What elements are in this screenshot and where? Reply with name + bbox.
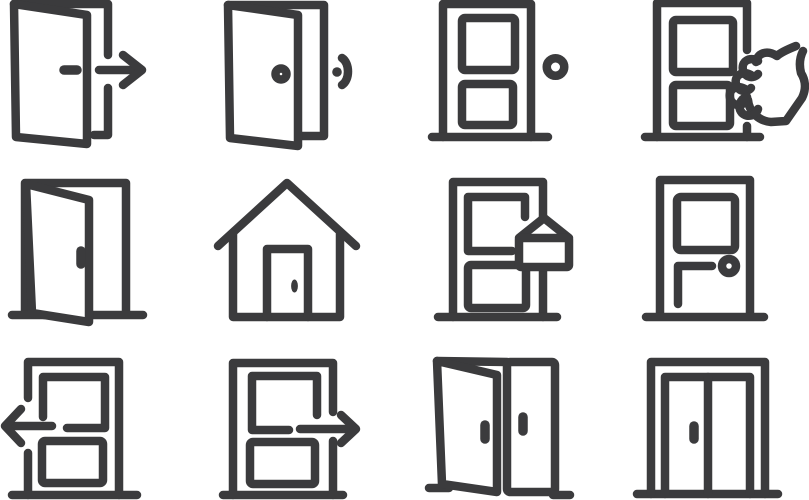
door-panel-bottom [462,84,513,125]
double-door-one-open-icon [400,340,600,500]
door-knob [291,280,298,293]
door-arrow-right-icon [200,340,400,500]
push-handle [678,266,712,304]
door-panel-bottom [673,85,730,126]
door-panel-bottom [250,442,315,484]
door-panel-bottom [468,265,526,308]
door-icon-set-sheet [0,0,809,500]
door-open-icon [0,170,200,340]
door-exit-arrow-right-icon [0,0,200,170]
door-panel-bottom [42,441,103,483]
icon-cell-7 [400,170,600,340]
door-closed-doorbell-icon [400,0,600,170]
door-leaf-right [507,362,555,492]
icon-cell-6 [200,170,400,340]
door-knocking-hand-icon [600,0,809,170]
icon-cell-1 [0,0,200,170]
knocking-hand [730,46,805,122]
door-window-handle-icon [600,170,809,340]
hanging-sign [519,218,569,268]
house-door [267,249,308,317]
door-panel-top [43,377,105,428]
house-roof [218,183,356,246]
sound-wave [342,58,348,85]
door-window [677,197,735,250]
icon-cell-4 [600,0,809,170]
door-panel-top [252,376,317,430]
icon-cell-12 [600,340,809,500]
door-knob [722,259,736,273]
icon-cell-8 [600,170,809,340]
door-panel-top [462,18,515,70]
door-open-doorbell-icon [200,0,400,170]
home-icon [200,170,400,340]
doorbell-button [547,58,565,76]
icon-cell-3 [400,0,600,170]
sign-mask [519,218,569,268]
icon-cell-2 [200,0,400,170]
sound-dot [332,67,342,77]
double-door-closed-icon [600,340,809,500]
icon-cell-10 [200,340,400,500]
door-hanger-sign-icon [400,170,600,340]
icon-cell-11 [400,340,600,500]
icon-cell-9 [0,340,200,500]
icon-cell-5 [0,170,200,340]
door-arrow-left-icon [0,340,200,500]
door-panel-top [673,20,733,72]
door-frame [94,88,108,135]
